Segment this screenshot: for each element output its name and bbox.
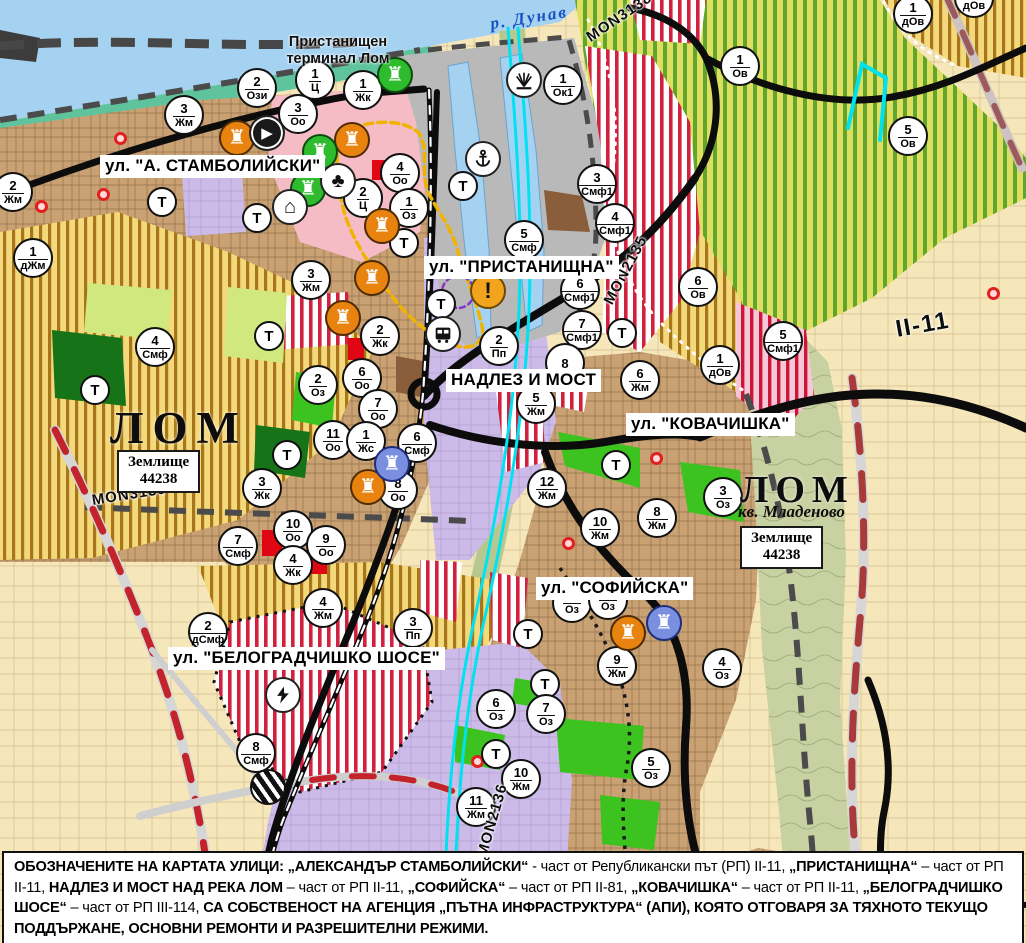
note-box: ОБОЗНАЧЕНИТЕ НА КАРТАТА УЛИЦИ: „АЛЕКСАНД…	[2, 851, 1024, 943]
note-segment: - част от Републикански път (РП) II-11,	[528, 859, 789, 875]
note-segment: – част от РП II-81,	[505, 880, 631, 896]
map-canvas[interactable]: 2Ози1Ц1Жк3Оо3Жм2Жм1дЖм3Жм4Оо2Ц1Оз5Смф1Ок…	[0, 0, 1026, 943]
note-segment: – част от РП II-11,	[283, 880, 408, 896]
base-map	[0, 0, 1026, 943]
note-segment: НАДЛЕЗ И МОСТ НАД РЕКА ЛОМ	[49, 880, 283, 896]
note-segment: – част от РП II-11,	[738, 880, 863, 896]
note-segment: „ПРИСТАНИЩНА“	[789, 859, 917, 875]
note-segment: ОБОЗНАЧЕНИТЕ НА КАРТАТА УЛИЦИ: „АЛЕКСАНД…	[14, 859, 528, 875]
note-segment: – част от РП III-114,	[67, 900, 204, 916]
note-text: ОБОЗНАЧЕНИТЕ НА КАРТАТА УЛИЦИ: „АЛЕКСАНД…	[14, 857, 1012, 940]
note-segment: „КОВАЧИШКА“	[631, 880, 738, 896]
note-segment: „СОФИЙСКА“	[408, 880, 506, 896]
